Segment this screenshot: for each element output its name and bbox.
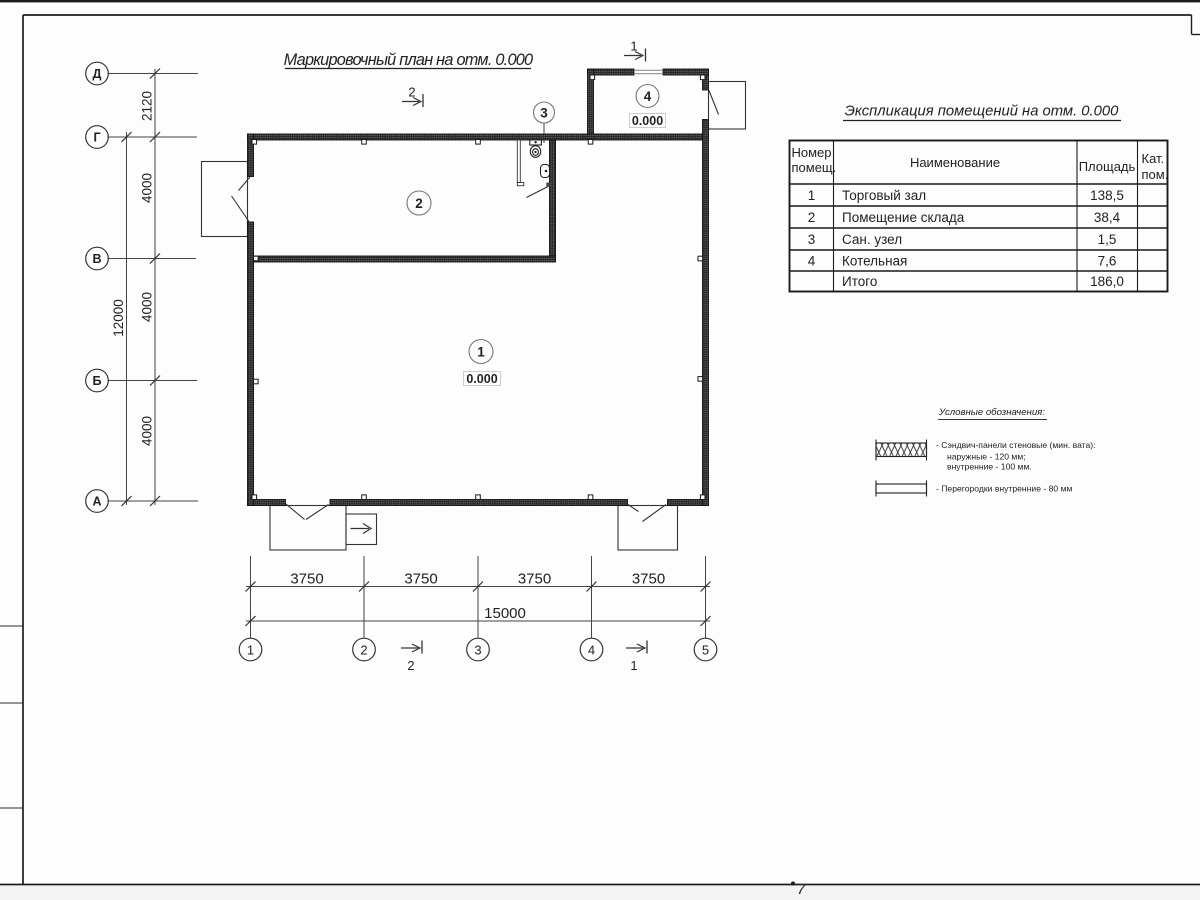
svg-text:Условные обозначения:: Условные обозначения:	[938, 407, 1045, 418]
svg-text:Г: Г	[93, 131, 100, 145]
svg-text:Д: Д	[93, 67, 102, 81]
svg-text:1: 1	[630, 658, 637, 673]
svg-text:12000: 12000	[111, 299, 126, 337]
svg-text:5: 5	[702, 642, 709, 657]
svg-text:1: 1	[247, 642, 254, 657]
svg-text:Помещение склада: Помещение склада	[842, 210, 965, 225]
svg-text:Номер: Номер	[792, 145, 832, 160]
svg-text:Сан. узел: Сан. узел	[842, 232, 902, 247]
svg-text:1: 1	[808, 188, 816, 203]
svg-text:7,6: 7,6	[1098, 254, 1117, 269]
svg-text:4000: 4000	[140, 173, 155, 203]
svg-text:15000: 15000	[484, 605, 526, 622]
svg-text:3750: 3750	[632, 571, 665, 588]
svg-text:4: 4	[588, 642, 595, 657]
svg-text:2: 2	[808, 210, 816, 225]
svg-text:1: 1	[630, 39, 637, 54]
svg-text:Экспликация помещений на отм.: Экспликация помещений на отм. 0.000	[845, 104, 1119, 120]
svg-text:Маркировочный план на отм. 0.0: Маркировочный план на отм. 0.000	[284, 51, 533, 69]
svg-text:внутренние - 100 мм.: внутренние - 100 мм.	[947, 462, 1032, 472]
svg-text:3: 3	[540, 106, 548, 121]
svg-text:Котельная: Котельная	[842, 254, 907, 269]
svg-text:7: 7	[797, 881, 806, 898]
svg-text:38,4: 38,4	[1094, 210, 1121, 225]
svg-text:186,0: 186,0	[1090, 274, 1124, 289]
svg-text:2: 2	[360, 642, 367, 657]
svg-text:помещ.: помещ.	[792, 160, 837, 175]
svg-text:Кат.: Кат.	[1142, 151, 1165, 166]
svg-text:0.000: 0.000	[466, 372, 497, 386]
svg-text:- Сэндвич-панели стеновые (мин: - Сэндвич-панели стеновые (мин. вата):	[936, 440, 1096, 450]
svg-text:3750: 3750	[404, 571, 437, 588]
svg-text:138,5: 138,5	[1090, 188, 1124, 203]
svg-text:0.000: 0.000	[632, 114, 663, 128]
svg-text:наружные - 120 мм;: наружные - 120 мм;	[947, 452, 1026, 462]
svg-text:3: 3	[474, 642, 481, 657]
svg-text:3750: 3750	[518, 571, 551, 588]
svg-text:В: В	[92, 252, 101, 266]
svg-text:4000: 4000	[140, 292, 155, 322]
svg-text:4: 4	[808, 254, 816, 269]
svg-text:1: 1	[477, 345, 485, 360]
svg-text:2: 2	[408, 85, 415, 100]
svg-text:2: 2	[407, 658, 414, 673]
svg-text:Наименование: Наименование	[910, 155, 1000, 170]
svg-text:Торговый зал: Торговый зал	[842, 188, 926, 203]
svg-text:Итого: Итого	[842, 274, 877, 289]
svg-text:Б: Б	[93, 374, 102, 388]
svg-text:2: 2	[415, 196, 423, 211]
svg-text:2120: 2120	[140, 91, 155, 121]
svg-text:Площадь: Площадь	[1079, 159, 1136, 174]
svg-text:3: 3	[808, 232, 816, 247]
svg-text:- Перегородки внутренние - 80: - Перегородки внутренние - 80 мм	[936, 484, 1072, 494]
svg-text:пом.: пом.	[1142, 167, 1169, 182]
svg-text:4: 4	[644, 89, 652, 104]
svg-text:А: А	[92, 495, 101, 509]
svg-text:4000: 4000	[140, 416, 155, 446]
svg-text:1,5: 1,5	[1098, 232, 1117, 247]
svg-text:3750: 3750	[290, 571, 323, 588]
